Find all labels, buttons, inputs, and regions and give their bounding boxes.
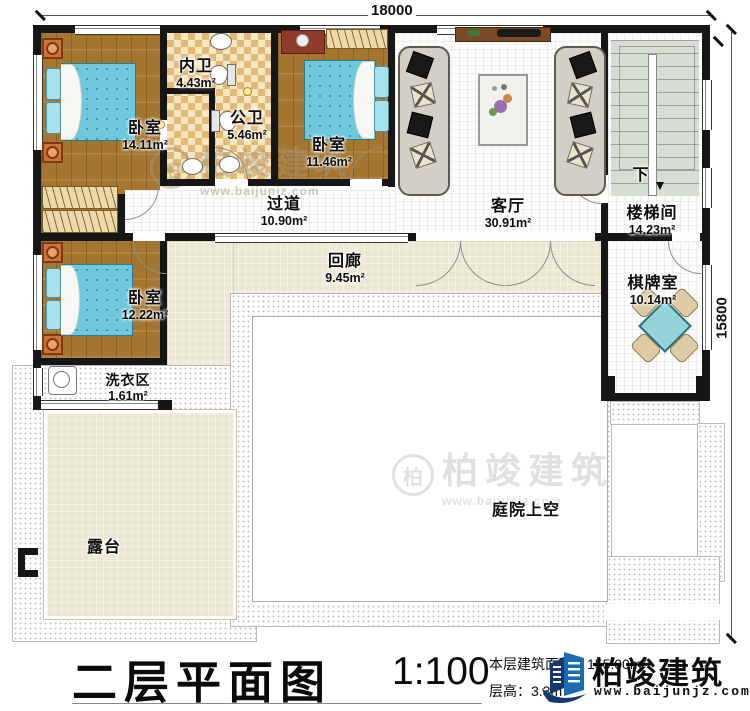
title-underline — [72, 703, 482, 704]
window-symbol — [215, 233, 408, 243]
room-area: 30.91m² — [485, 216, 532, 230]
room-label-bedroom-3: 卧室 12.22m² — [122, 290, 169, 322]
drawing-scale: 1:100 — [392, 650, 490, 694]
pillow — [46, 300, 61, 330]
room-area: 14.23m² — [626, 223, 677, 237]
window-symbol — [702, 168, 712, 208]
wall-segment — [160, 25, 167, 120]
wardrobe — [326, 29, 388, 49]
dimension-top-value: 18000 — [368, 2, 416, 19]
pillow — [46, 102, 61, 134]
wall-segment — [33, 358, 167, 365]
room-name: 内卫 — [176, 58, 216, 76]
wall-segment — [158, 400, 172, 410]
room-area: 5.46m² — [227, 128, 267, 142]
floor-height-label: 层高： — [489, 683, 531, 699]
room-label-laundry: 洗衣区 1.61m² — [106, 373, 151, 403]
room-name: 露台 — [87, 539, 121, 557]
flower-decor — [503, 94, 512, 103]
room-label-courtyard: 庭院上空 — [492, 502, 560, 520]
sofa-cushion — [567, 82, 593, 108]
wall-segment — [165, 233, 215, 241]
sink-icon — [182, 158, 203, 175]
sink-icon — [219, 156, 240, 173]
wall-segment — [601, 393, 710, 401]
pillow — [46, 68, 61, 100]
wall-segment — [18, 570, 38, 577]
wall-segment — [388, 25, 395, 187]
flower-decor — [489, 108, 497, 116]
room-area: 10.14m² — [627, 293, 678, 307]
sink-icon — [210, 33, 232, 50]
room-label-inner-bath: 内卫 4.43m² — [176, 58, 216, 90]
wall-segment — [248, 179, 350, 186]
pillow — [374, 100, 389, 132]
dimension-line-right — [731, 30, 732, 640]
drawing-title: 二层平面图 — [72, 646, 332, 711]
wall-segment — [702, 25, 710, 241]
wall-segment — [601, 376, 615, 401]
sofa-cushion — [410, 82, 436, 108]
wall-segment — [408, 233, 416, 241]
table-decor — [492, 86, 497, 91]
room-area: 11.46m² — [306, 155, 352, 169]
wardrobe — [42, 210, 118, 233]
room-name: 客厅 — [485, 198, 532, 216]
room-label-terrace: 露台 — [87, 539, 121, 557]
pillow — [46, 268, 61, 298]
nightstand — [42, 242, 63, 263]
window-symbol — [75, 25, 160, 35]
room-area: 4.43m² — [176, 76, 216, 90]
roof-band-3 — [606, 556, 720, 644]
room-name: 公卫 — [227, 110, 267, 128]
brand-site: www.baijunjz.com — [594, 684, 750, 699]
tv-icon — [497, 29, 541, 37]
room-label-bedroom-2: 卧室 11.46m² — [306, 137, 352, 169]
wall-segment — [117, 194, 125, 240]
room-label-stairwell: 楼梯间 14.23m² — [626, 205, 677, 237]
floor-plan-page: 柏 柏竣建筑 www.baijunjz.com 柏 柏竣建筑 www.baiju… — [0, 0, 750, 711]
pillow — [374, 66, 389, 98]
room-name: 下 — [632, 167, 649, 185]
room-name: 楼梯间 — [626, 205, 677, 223]
room-area: 14.11m² — [122, 138, 168, 152]
window-symbol — [702, 80, 712, 130]
floor-terrace — [44, 410, 236, 619]
room-label-gallery: 回廊 9.45m² — [325, 253, 365, 285]
room-area: 12.22m² — [122, 308, 169, 322]
room-name: 卧室 — [122, 290, 169, 308]
door-pivot — [243, 87, 252, 96]
lamp-icon — [296, 34, 309, 47]
stair-railing-outline — [619, 46, 695, 170]
nightstand — [42, 142, 63, 163]
wall-segment — [700, 233, 710, 241]
room-name: 棋牌室 — [627, 275, 678, 293]
nightstand — [42, 38, 63, 59]
room-label-bedroom-1: 卧室 14.11m² — [122, 120, 168, 152]
brand-logo-icon — [540, 644, 592, 706]
wall-segment — [382, 179, 395, 186]
window-symbol — [33, 368, 43, 396]
room-area: 10.90m² — [261, 214, 308, 228]
window-symbol — [33, 55, 43, 150]
room-name: 洗衣区 — [106, 373, 151, 389]
room-label-living-room: 客厅 30.91m² — [485, 198, 532, 230]
toilet-icon — [227, 64, 236, 86]
room-name: 回廊 — [325, 253, 365, 271]
room-label-chess-room: 棋牌室 10.14m² — [627, 275, 678, 307]
wall-segment — [271, 25, 278, 186]
room-label-hallway: 过道 10.90m² — [261, 196, 308, 228]
wall-segment — [160, 179, 215, 186]
room-label-public-bath: 公卫 5.46m² — [227, 110, 267, 142]
roof-band-1 — [610, 401, 700, 425]
room-name: 过道 — [261, 196, 308, 214]
table-decor — [501, 84, 507, 90]
room-area: 1.61m² — [106, 389, 151, 403]
room-name: 庭院上空 — [492, 502, 560, 520]
dimension-right-value: 15800 — [714, 294, 731, 342]
nightstand — [42, 334, 63, 355]
dimension-tick — [713, 36, 724, 47]
wall-segment — [33, 400, 41, 408]
room-name: 卧室 — [122, 120, 168, 138]
roof-gap — [604, 604, 720, 620]
bed-sheet — [353, 61, 374, 139]
stair-down-arrow-icon — [656, 182, 664, 190]
wardrobe — [42, 186, 118, 209]
plant-icon — [468, 30, 480, 36]
wall-segment — [696, 376, 710, 401]
washing-machine-drum — [53, 371, 70, 388]
window-symbol — [702, 265, 712, 350]
stair-down-label: 下 — [632, 167, 649, 185]
room-area: 9.45m² — [325, 271, 365, 285]
room-name: 卧室 — [306, 137, 352, 155]
courtyard-void — [252, 316, 608, 602]
